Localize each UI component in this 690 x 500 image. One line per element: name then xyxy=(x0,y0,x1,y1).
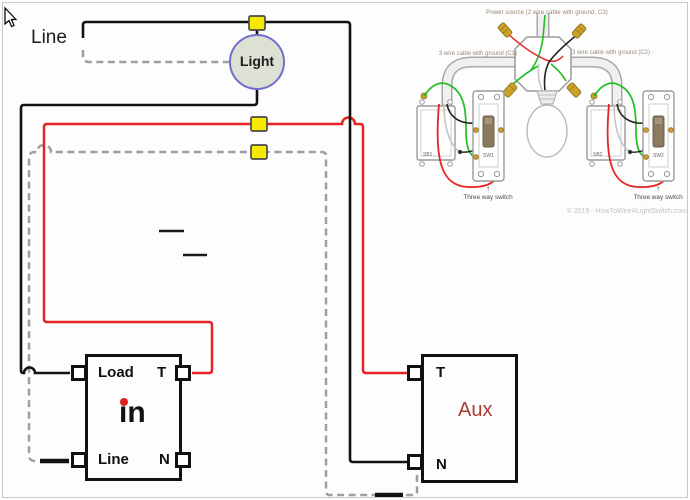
neutral-wire-line-to-light xyxy=(83,50,230,62)
wiring-diagram-canvas: Power source (2 wire cable with ground, … xyxy=(0,0,690,500)
inset-arrow-right: ↑ xyxy=(656,184,660,193)
inset-three-way-right: Three way switch xyxy=(633,194,683,201)
aux-module-label: Aux xyxy=(458,399,492,422)
load-terminal xyxy=(71,365,87,381)
neutral-terminal-main xyxy=(175,452,191,468)
t-terminal-label-aux: T xyxy=(436,364,445,381)
traveler-wire xyxy=(44,118,408,374)
n-terminal-label-aux: N xyxy=(436,456,447,473)
inset-sb2-label: SB2 xyxy=(593,152,603,158)
ceiling-box xyxy=(515,37,571,91)
inset-sb1-label: SB1 xyxy=(423,152,433,158)
line-feed-label: Line xyxy=(31,27,67,49)
line-terminal-label: Line xyxy=(98,451,129,468)
wire-nut-traveler xyxy=(251,117,267,131)
line-terminal xyxy=(71,452,87,468)
load-terminal-label: Load xyxy=(98,364,134,381)
wire-nut-neutral xyxy=(251,145,267,159)
inset-cable-c2-label: 3 wire cable with ground (C2) xyxy=(572,50,650,56)
switch-unit-right xyxy=(587,83,674,187)
mouse-cursor xyxy=(5,8,16,27)
n-terminal-label-main: N xyxy=(159,451,170,468)
inset-three-way-left: Three way switch xyxy=(463,194,513,201)
wire-nut-hot xyxy=(249,16,265,30)
inset-sw2-label: SW2 xyxy=(653,153,664,159)
hot-wire-light-return xyxy=(21,89,257,373)
inset-cable-c1-label: 3 wire cable with ground (C1) xyxy=(439,51,517,57)
inset-sw1-label: SW1 xyxy=(483,153,494,159)
inset-power-label: Power source (2 wire cable with ground, … xyxy=(486,9,608,16)
neutral-terminal-aux xyxy=(407,454,423,470)
traveler-terminal-main xyxy=(175,365,191,381)
inset-arrow-left: ↑ xyxy=(486,184,490,193)
light-bulb xyxy=(527,91,567,157)
inset-reference-image: Power source (2 wire cable with ground, … xyxy=(405,0,690,230)
light-label: Light xyxy=(231,53,283,69)
traveler-terminal-aux xyxy=(407,365,423,381)
brand-logo-dot xyxy=(120,398,128,406)
switch-unit-left xyxy=(417,83,504,187)
t-terminal-label-main: T xyxy=(157,364,166,381)
inset-copyright: © 2019 - HowToWireALightSwitch.com xyxy=(567,207,687,215)
